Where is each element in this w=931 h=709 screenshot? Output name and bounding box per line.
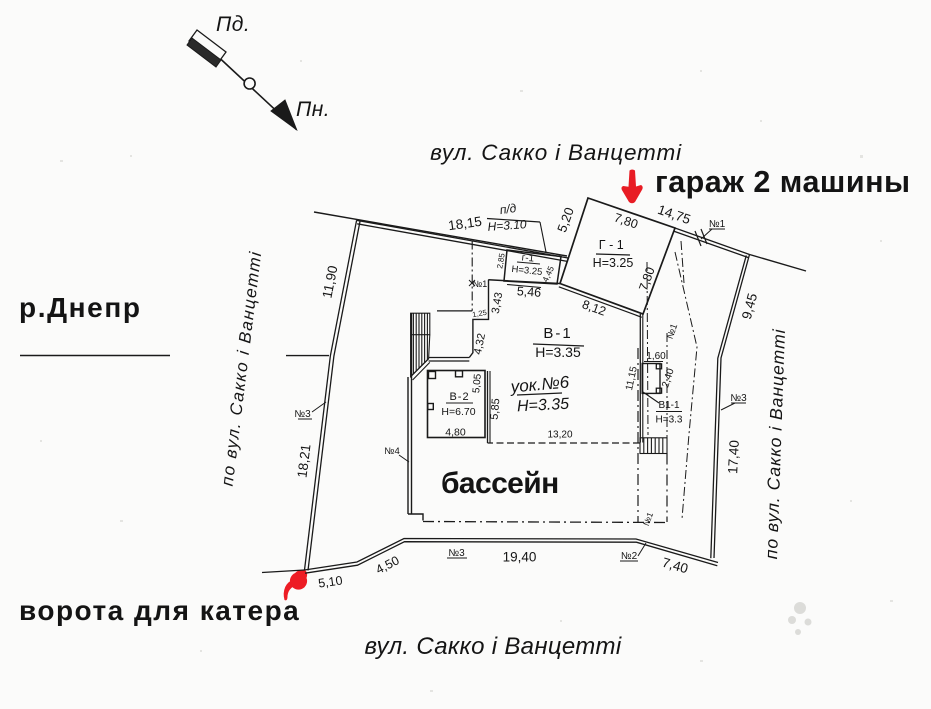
- svg-text:№3: №3: [448, 548, 465, 559]
- svg-text:Н=3.35: Н=3.35: [517, 396, 570, 416]
- svg-text:№3: №3: [294, 409, 311, 420]
- svg-text:Пд.: Пд.: [216, 13, 250, 36]
- svg-text:№4: №4: [384, 446, 399, 457]
- svg-text:5,05: 5,05: [471, 373, 484, 394]
- svg-text:17,40: 17,40: [725, 440, 742, 475]
- svg-text:Г-1: Г-1: [599, 238, 627, 252]
- svg-text:Н=3.25: Н=3.25: [593, 256, 634, 270]
- svg-text:ворота для катера: ворота для катера: [19, 595, 300, 626]
- svg-text:Н=3.10: Н=3.10: [487, 217, 527, 234]
- svg-text:бассейн: бассейн: [441, 467, 559, 500]
- svg-text:Пн.: Пн.: [296, 98, 330, 121]
- svg-text:Н=3.3: Н=3.3: [656, 415, 683, 426]
- svg-text:Н=6.70: Н=6.70: [441, 406, 475, 418]
- svg-text:1,60: 1,60: [646, 351, 666, 362]
- svg-text:вул. Сакко і Ванцетті: вул. Сакко і Ванцетті: [430, 140, 682, 165]
- svg-text:№2: №2: [621, 551, 638, 562]
- svg-text:гараж 2 машины: гараж 2 машины: [655, 165, 911, 199]
- svg-text:№3: №3: [730, 393, 747, 404]
- svg-text:№1: №1: [709, 219, 726, 230]
- svg-text:р.Днепр: р.Днепр: [19, 292, 142, 323]
- svg-text:4,80: 4,80: [445, 427, 466, 439]
- svg-text:В-1: В-1: [543, 325, 572, 342]
- svg-text:19,40: 19,40: [503, 550, 537, 565]
- svg-text:В1-1: В1-1: [658, 400, 680, 411]
- svg-text:Н=3.35: Н=3.35: [535, 344, 581, 360]
- svg-text:вул. Сакко і Ванцетті: вул. Сакко і Ванцетті: [365, 633, 622, 660]
- svg-text:В-2: В-2: [449, 391, 469, 403]
- svg-text:п/д: п/д: [499, 201, 518, 217]
- svg-text:5,46: 5,46: [516, 284, 541, 300]
- svg-text:5,85: 5,85: [489, 398, 503, 420]
- svg-text:13,20: 13,20: [547, 430, 572, 441]
